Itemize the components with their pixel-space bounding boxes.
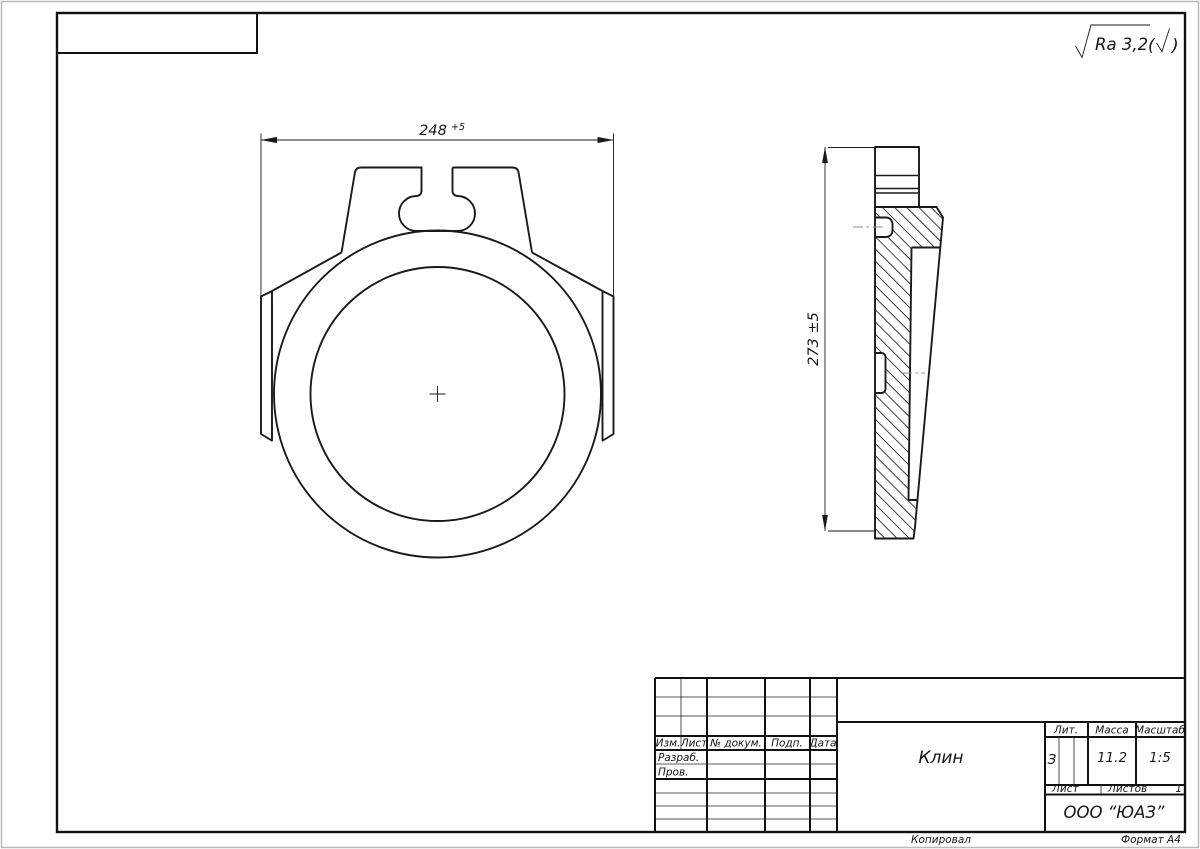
masshtab-value: 1:5 [1149,750,1171,766]
col-data: Дата [808,738,836,750]
roughness-value: Ra 3,2 [1095,35,1148,54]
part-name: Клин [918,748,963,768]
massa-value: 11.2 [1097,750,1127,766]
header-lit: Лит. [1053,725,1078,737]
lit-value: З [1048,752,1057,768]
dim-273-value: 273 ±5 [806,312,822,366]
kopiroval-label: Копировал [911,834,971,846]
col-list: Лист [680,738,708,750]
format-label: Формат А4 [1121,834,1181,846]
company-name: ООО “ЮАЗ” [1064,803,1165,822]
drawing-sheet: Ra 3,2 ( ) 248 +5 [0,0,1200,849]
sheets-count: 1 [1175,783,1182,795]
roughness-paren-close: ) [1170,36,1179,56]
header-masshtab: Масштаб [1135,725,1185,737]
header-massa: Масса [1095,725,1128,737]
col-num-doc: № докум. [709,738,762,750]
dim-248-value: 248 [419,123,447,139]
header-sheets: Листов [1107,783,1147,795]
col-izm: Изм. [656,738,681,750]
header-sheet: Лист [1051,783,1079,795]
row-prov: Пров. [658,767,689,779]
dim-248-tolerance: +5 [451,122,465,133]
sheet-border [2,2,1199,848]
col-podp: Подп. [771,738,803,750]
row-razrab: Разраб. [658,752,699,764]
